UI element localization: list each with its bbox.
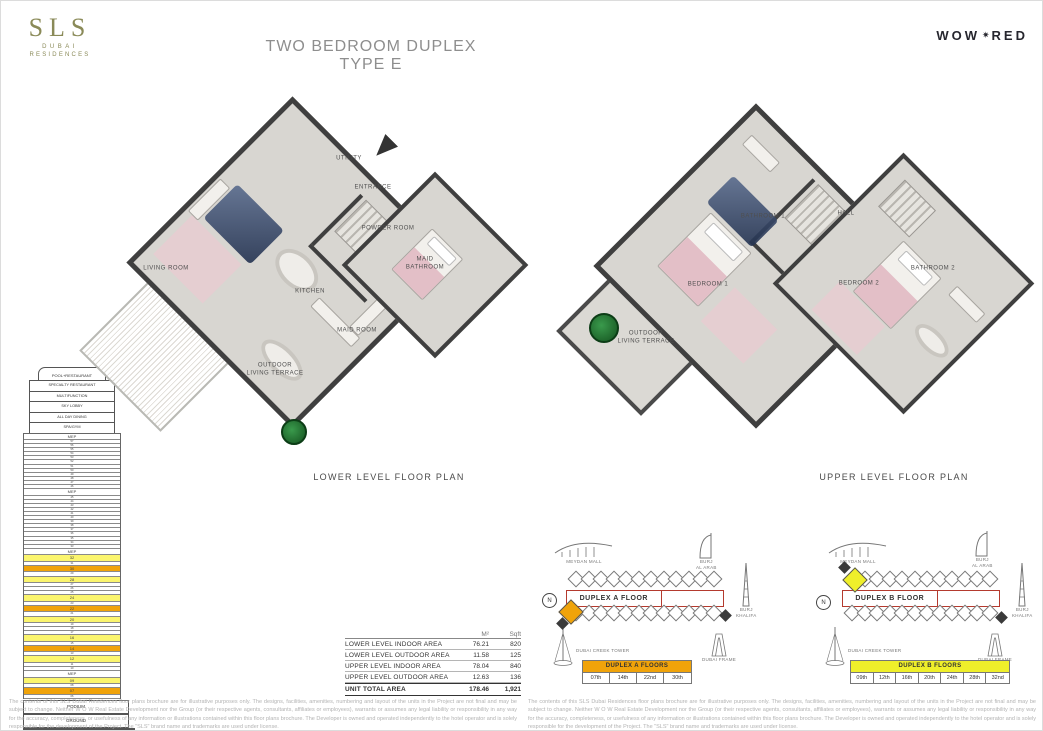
upper-level-floor-plan: BATHROOM 1 HALL BEDROOM 1 BEDROOM 2 BATH… <box>581 91 1041 463</box>
area-table-row: LOWER LEVEL OUTDOOR AREA11.58125 <box>345 650 521 661</box>
sls-sub-dubai: DUBAI <box>21 44 99 50</box>
total-sqft: 1,921 <box>489 686 521 693</box>
disclaimer-right: The contents of this SLS Dubai Residence… <box>528 698 1036 731</box>
area-cell: 11.58 <box>453 652 489 659</box>
red-text: RED <box>992 28 1028 43</box>
room-label-bedroom1: BEDROOM 1 <box>688 281 729 289</box>
sls-brand-text: SLS <box>21 15 99 41</box>
duplex-b-floor-cell: 16th <box>896 673 919 683</box>
area-table-row: UPPER LEVEL INDOOR AREA78.04840 <box>345 661 521 672</box>
wow-red-logo: WOW ✷ RED <box>936 28 1028 43</box>
duplex-b-locator: MEYDAN MALL BURJ AL ARAB BURJ KHALIFA N … <box>814 529 1043 699</box>
north-compass-icon: N <box>542 593 557 608</box>
room-label-bathroom2: BATHROOM 2 <box>911 265 955 273</box>
area-table-header: M² Sqft <box>345 628 521 639</box>
tower-floor-rows: MEP575655545352515049484746MEP4544434241… <box>23 433 121 699</box>
bathroom2-tub <box>909 318 954 363</box>
disclaimer-left: The contents of this SLS Dubai Residence… <box>9 698 517 731</box>
duplex-a-floor-plate: DUPLEX A FLOOR <box>562 571 728 631</box>
sls-logo: SLS DUBAI RESIDENCES <box>21 15 99 58</box>
area-cell: 840 <box>489 663 521 670</box>
tower-cap-pool-restaurant: POOL+RESTAURANT <box>38 367 106 381</box>
upper-plan-caption: UPPER LEVEL FLOOR PLAN <box>779 472 1009 482</box>
plate-units-top <box>570 573 720 585</box>
duplex-b-floor-cell: 20th <box>919 673 942 683</box>
area-header-m2: M² <box>453 631 489 638</box>
area-cell: 125 <box>489 652 521 659</box>
dubai-creek-tower-sketch-icon <box>824 627 846 667</box>
burj-al-arab-sketch-icon: BURJ AL ARAB <box>696 533 717 571</box>
total-label: UNIT TOTAL AREA <box>345 686 453 693</box>
area-table-body: LOWER LEVEL INDOOR AREA76.21820LOWER LEV… <box>345 639 521 683</box>
dubai-creek-tower-label: DUBAI CREEK TOWER <box>576 648 629 654</box>
area-table-row: LOWER LEVEL INDOOR AREA76.21820 <box>345 639 521 650</box>
duplex-a-floor-cell: 22nd <box>637 673 664 683</box>
area-cell: LOWER LEVEL OUTDOOR AREA <box>345 652 453 659</box>
lower-plan-caption: LOWER LEVEL FLOOR PLAN <box>279 472 499 482</box>
terrace-tub <box>254 333 309 388</box>
dubai-frame-label: DUBAI FRAME <box>702 657 736 663</box>
stairs <box>878 180 936 238</box>
duplex-a-floors-title: DUPLEX A FLOORS <box>583 661 691 673</box>
duplex-a-floor-cell: 14th <box>610 673 637 683</box>
area-cell: UPPER LEVEL INDOOR AREA <box>345 663 453 670</box>
bathroom2-vanity <box>948 286 985 323</box>
room-label-utility: UTILITY <box>336 155 362 163</box>
duplex-b-floor-cell: 24th <box>941 673 964 683</box>
room-label-outdoor-terrace: OUTDOOR LIVING TERRACE <box>618 331 675 346</box>
room-label-bedroom2: BEDROOM 2 <box>839 280 880 288</box>
duplex-b-floors-cells: 09th12th16th20th24th28th32nd <box>851 673 1009 683</box>
area-table-total-row: UNIT TOTAL AREA 178.46 1,921 <box>345 683 521 696</box>
area-cell: 12.63 <box>453 674 489 681</box>
room-label-maid-room: MAID ROOM <box>337 327 377 335</box>
bed-blanket <box>658 237 726 305</box>
room-label-hall: HALL <box>837 210 854 218</box>
room-label-outdoor-terrace: OUTDOOR LIVING TERRACE <box>247 363 304 378</box>
page-title: TWO BEDROOM DUPLEX TYPE E <box>249 38 493 74</box>
area-header-sqft: Sqft <box>489 631 521 638</box>
room-label-kitchen: KITCHEN <box>295 288 325 296</box>
burj-khalifa-label: BURJ KHALIFA <box>736 607 757 619</box>
area-cell: UPPER LEVEL OUTDOOR AREA <box>345 674 453 681</box>
brochure-page: SLS DUBAI RESIDENCES TWO BEDROOM DUPLEX … <box>0 0 1043 731</box>
area-cell: 136 <box>489 674 521 681</box>
duplex-b-floors-title: DUPLEX B FLOORS <box>851 661 1009 673</box>
duplex-a-floors-cells: 07th14th22nd30th <box>583 673 691 683</box>
area-cell: 78.04 <box>453 663 489 670</box>
plate-units-bottom <box>570 607 720 619</box>
duplex-b-floor-band-label: DUPLEX B FLOOR <box>843 591 938 606</box>
plate-unit-diamond <box>981 571 998 588</box>
room-label-entrance: ENTRANCE <box>354 184 391 192</box>
area-cell: 820 <box>489 641 521 648</box>
duplex-b-floor-cell: 32nd <box>986 673 1009 683</box>
dubai-creek-tower-sketch-icon <box>552 627 574 667</box>
burj-al-arab-label: BURJ AL ARAB <box>972 557 993 569</box>
plate-units-top <box>846 573 996 585</box>
duplex-b-floor-cell: 09th <box>851 673 874 683</box>
room-label-bathroom1: BATHROOM 1 <box>741 213 785 221</box>
duplex-b-floors-table: DUPLEX B FLOORS 09th12th16th20th24th28th… <box>850 660 1010 684</box>
wow-star-icon: ✷ <box>982 30 990 41</box>
burj-khalifa-sketch-icon: BURJ KHALIFA <box>1012 563 1033 619</box>
duplex-b-floor-plate: DUPLEX B FLOOR <box>838 571 1004 631</box>
duplex-a-floor-band-label: DUPLEX A FLOOR <box>567 591 662 606</box>
duplex-a-floor-cell: 07th <box>583 673 610 683</box>
meydan-mall-label: MEYDAN MALL <box>828 559 888 565</box>
plate-unit-diamond <box>705 571 722 588</box>
duplex-b-floor-cell: 12th <box>874 673 897 683</box>
entrance-arrow-icon <box>370 134 398 162</box>
dubai-frame-sketch-icon: DUBAI FRAME <box>978 633 1012 663</box>
area-table-row: UPPER LEVEL OUTDOOR AREA12.63136 <box>345 672 521 683</box>
lower-level-floor-plan: UTILITY ENTRANCE POWDER ROOM MAID BATHRO… <box>111 81 491 461</box>
plant-icon <box>589 313 619 343</box>
tower-amenities: SPECIALTY RESTAURANTMULTIFUNCTIONSKY LOB… <box>23 380 121 434</box>
duplex-a-locator: MEYDAN MALL BURJ AL ARAB BURJ KHALIFA N … <box>544 529 762 699</box>
meydan-mall-sketch-icon: MEYDAN MALL <box>554 537 614 565</box>
duplex-b-floor-cell: 28th <box>964 673 987 683</box>
burj-al-arab-label: BURJ AL ARAB <box>696 559 717 571</box>
room-label-maid-bathroom: MAID BATHROOM <box>406 257 444 272</box>
room-label-powder-room: POWDER ROOM <box>362 225 415 233</box>
unit-area-table: M² Sqft LOWER LEVEL INDOOR AREA76.21820L… <box>345 628 521 696</box>
burj-khalifa-sketch-icon: BURJ KHALIFA <box>736 563 757 619</box>
burj-al-arab-sketch-icon: BURJ AL ARAB <box>972 531 993 569</box>
plate-units-bottom <box>846 607 996 619</box>
meydan-mall-sketch-icon: MEYDAN MALL <box>828 537 888 565</box>
bed-blanket <box>393 247 444 298</box>
dubai-frame-sketch-icon: DUBAI FRAME <box>702 633 736 663</box>
duplex-a-floors-table: DUPLEX A FLOORS 07th14th22nd30th <box>582 660 692 684</box>
plant-icon <box>281 419 307 445</box>
meydan-mall-label: MEYDAN MALL <box>554 559 614 565</box>
area-cell: 76.21 <box>453 641 489 648</box>
bathroom1-vanity <box>742 134 780 172</box>
building-stack-diagram: POOL+RESTAURANT SPECIALTY RESTAURANTMULT… <box>23 367 121 730</box>
north-compass-icon: N <box>816 595 831 610</box>
wow-text: WOW <box>936 28 980 43</box>
total-m2: 178.46 <box>453 686 489 693</box>
sls-sub-residences: RESIDENCES <box>21 52 99 58</box>
room-label-living-room: LIVING ROOM <box>143 265 189 273</box>
area-cell: LOWER LEVEL INDOOR AREA <box>345 641 453 648</box>
duplex-a-floor-cell: 30th <box>664 673 691 683</box>
dubai-creek-tower-label: DUBAI CREEK TOWER <box>848 648 901 654</box>
burj-khalifa-label: BURJ KHALIFA <box>1012 607 1033 619</box>
floor-accent <box>701 287 777 363</box>
